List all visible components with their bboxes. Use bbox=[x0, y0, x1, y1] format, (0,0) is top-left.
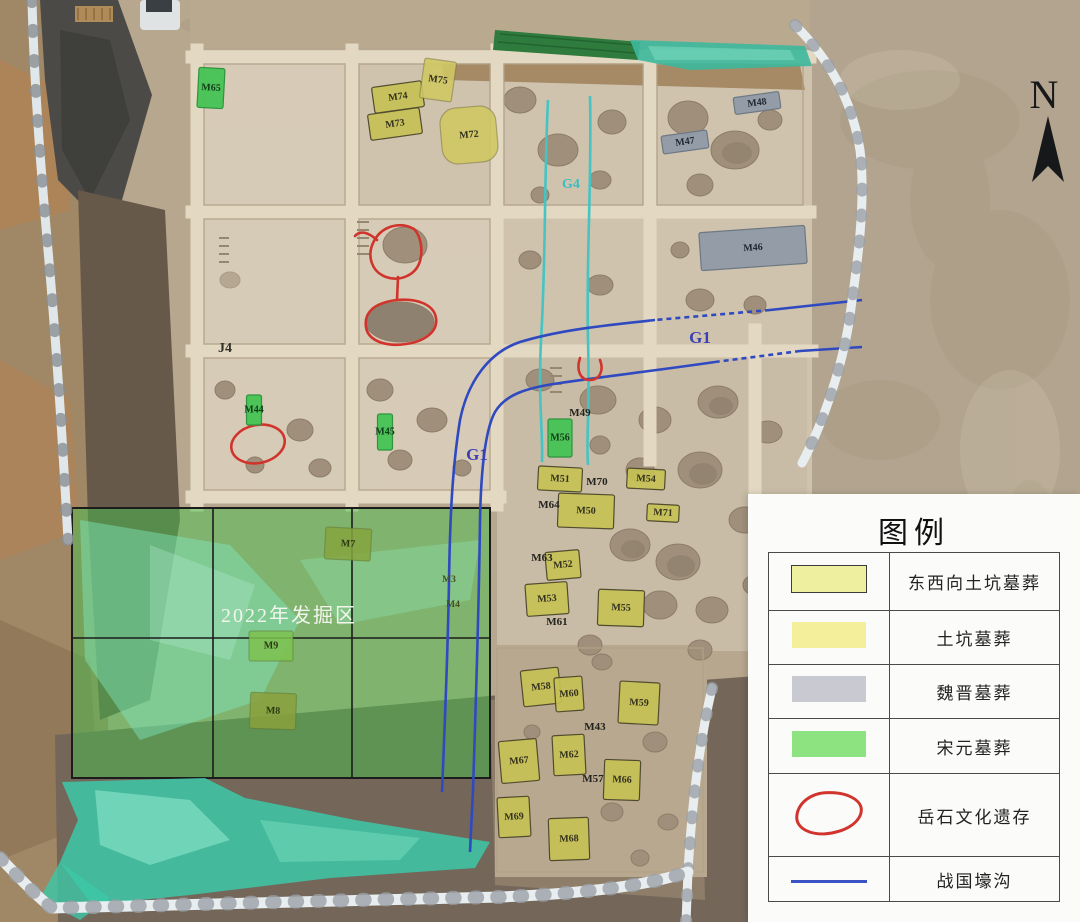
svg-text:M60: M60 bbox=[559, 688, 579, 700]
tomb-marker-m50: M50 bbox=[557, 493, 614, 529]
map-label-tomb-m63: M63 bbox=[531, 552, 553, 564]
svg-text:M8: M8 bbox=[266, 705, 281, 716]
svg-text:M50: M50 bbox=[576, 505, 596, 517]
tomb-marker-m72: M72 bbox=[439, 105, 500, 166]
map-label-ditch-g4: G4 bbox=[562, 177, 580, 192]
svg-text:M62: M62 bbox=[559, 749, 579, 761]
svg-text:M55: M55 bbox=[611, 602, 631, 614]
legend-row: 魏晋墓葬 bbox=[769, 665, 1060, 719]
legend-table: 东西向土坑墓葬 土坑墓葬 魏晋墓葬 宋元墓葬 岳石文化遗存 战国壕沟 bbox=[768, 552, 1060, 902]
legend-label: 东西向土坑墓葬 bbox=[890, 553, 1060, 611]
svg-text:M59: M59 bbox=[629, 697, 649, 709]
zhanguo-ditch-swatch bbox=[791, 880, 867, 883]
legend-label: 魏晋墓葬 bbox=[890, 665, 1060, 719]
tomb-marker-m65: M65 bbox=[197, 67, 225, 108]
svg-text:M72: M72 bbox=[459, 129, 479, 142]
tomb-marker-m56: M56 bbox=[548, 419, 572, 457]
map-label-tomb-m70: M70 bbox=[586, 476, 608, 488]
map-label-tomb-m57: M57 bbox=[582, 773, 604, 785]
legend-label: 战国壕沟 bbox=[890, 857, 1060, 902]
tomb-marker-m51: M51 bbox=[537, 466, 582, 492]
map-label-tomb-m3: M3 bbox=[442, 575, 456, 585]
tomb-marker-m68: M68 bbox=[548, 817, 589, 860]
map-label-trench-j4: J4 bbox=[218, 341, 232, 356]
tomb-marker-m54: M54 bbox=[627, 468, 666, 490]
tomb-marker-m44: M44 bbox=[244, 395, 263, 425]
legend-panel: 图例 东西向土坑墓葬 土坑墓葬 魏晋墓葬 宋元墓葬 岳石文化遗存 bbox=[748, 494, 1080, 922]
legend-row: 东西向土坑墓葬 bbox=[769, 553, 1060, 611]
tomb-marker-m60: M60 bbox=[554, 676, 584, 712]
pit-tomb-swatch bbox=[792, 622, 866, 648]
tomb-marker-m8: M8 bbox=[249, 692, 296, 730]
tomb-marker-m75: M75 bbox=[419, 58, 456, 102]
svg-text:M7: M7 bbox=[340, 538, 355, 550]
legend-label: 岳石文化遗存 bbox=[890, 773, 1060, 856]
legend-title: 图例 bbox=[748, 508, 1080, 552]
songyuan-tomb-swatch bbox=[792, 731, 866, 757]
map-label-tomb-m64: M64 bbox=[538, 499, 560, 511]
legend-row: 岳石文化遗存 bbox=[769, 773, 1060, 856]
map-label-ditch-g1-east: G1 bbox=[689, 328, 711, 347]
tomb-marker-m59: M59 bbox=[618, 681, 660, 725]
map-label-tomb-m61: M61 bbox=[546, 616, 567, 628]
legend-row: 土坑墓葬 bbox=[769, 610, 1060, 664]
svg-text:M53: M53 bbox=[537, 593, 557, 605]
svg-text:M46: M46 bbox=[743, 242, 763, 254]
tomb-marker-m45: M45 bbox=[375, 414, 394, 450]
tomb-marker-m66: M66 bbox=[603, 759, 640, 800]
svg-text:M54: M54 bbox=[636, 473, 656, 485]
legend-label: 土坑墓葬 bbox=[890, 610, 1060, 664]
tomb-marker-m9: M9 bbox=[249, 631, 293, 661]
map-label-tomb-m49: M49 bbox=[569, 407, 591, 419]
tomb-marker-m7: M7 bbox=[324, 527, 372, 561]
svg-text:M66: M66 bbox=[612, 774, 632, 786]
tomb-marker-m55: M55 bbox=[597, 589, 644, 627]
map-label-ditch-g1-west: G1 bbox=[466, 445, 488, 464]
legend-label: 宋元墓葬 bbox=[890, 719, 1060, 773]
east-west-pit-tomb-swatch bbox=[791, 565, 867, 593]
svg-text:M68: M68 bbox=[559, 833, 579, 845]
tomb-marker-m53: M53 bbox=[525, 582, 569, 617]
svg-text:M67: M67 bbox=[509, 755, 529, 768]
svg-text:M45: M45 bbox=[375, 427, 394, 438]
tomb-marker-m46: M46 bbox=[699, 225, 807, 270]
svg-text:M51: M51 bbox=[550, 473, 570, 485]
tomb-marker-m69: M69 bbox=[497, 796, 531, 838]
svg-text:M71: M71 bbox=[653, 507, 673, 519]
site-plan-image: M74M73M75M72M65M48M47M46M44M45M56M51M54M… bbox=[0, 0, 1080, 922]
svg-text:M56: M56 bbox=[550, 433, 569, 444]
tomb-marker-m67: M67 bbox=[498, 738, 540, 783]
map-label-excavation-area-2022: 2022年发掘区 bbox=[221, 604, 357, 627]
map-label-north-letter: N bbox=[1030, 72, 1059, 117]
tomb-marker-m62: M62 bbox=[552, 734, 586, 776]
map-label-tomb-m4: M4 bbox=[446, 600, 460, 610]
svg-text:M9: M9 bbox=[264, 641, 278, 652]
svg-text:M69: M69 bbox=[504, 811, 524, 823]
svg-text:M44: M44 bbox=[244, 405, 263, 416]
svg-text:M65: M65 bbox=[201, 82, 221, 94]
legend-row: 宋元墓葬 bbox=[769, 719, 1060, 773]
svg-text:M58: M58 bbox=[531, 681, 551, 694]
weijin-tomb-swatch bbox=[792, 676, 866, 702]
yueshi-remains-swatch bbox=[794, 788, 865, 837]
tomb-marker-m71: M71 bbox=[647, 504, 680, 523]
map-label-tomb-m43: M43 bbox=[584, 721, 606, 733]
svg-text:M52: M52 bbox=[553, 559, 573, 572]
legend-row: 战国壕沟 bbox=[769, 857, 1060, 902]
